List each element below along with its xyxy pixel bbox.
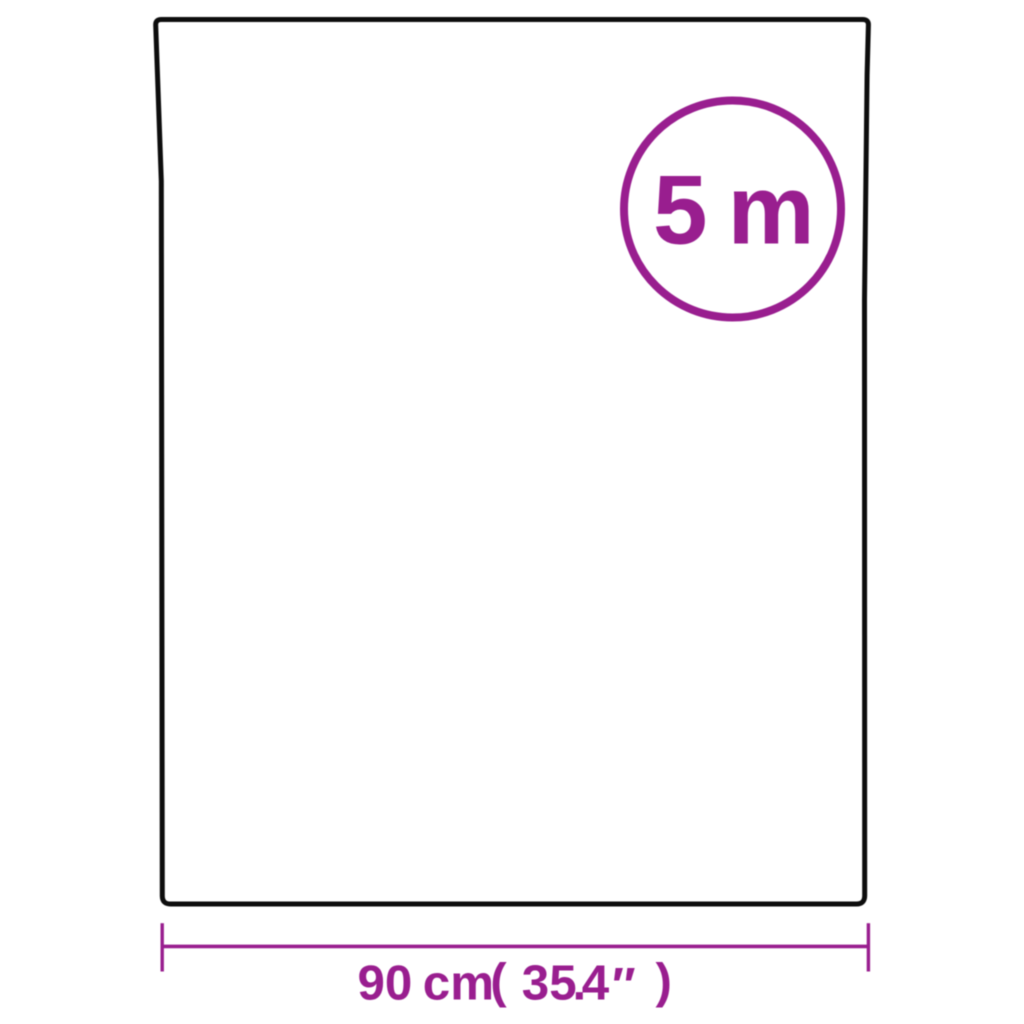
svg-text:5m: 5m [653, 155, 815, 265]
svg-text:90cm(35.4″): 90cm(35.4″) [358, 954, 672, 1013]
